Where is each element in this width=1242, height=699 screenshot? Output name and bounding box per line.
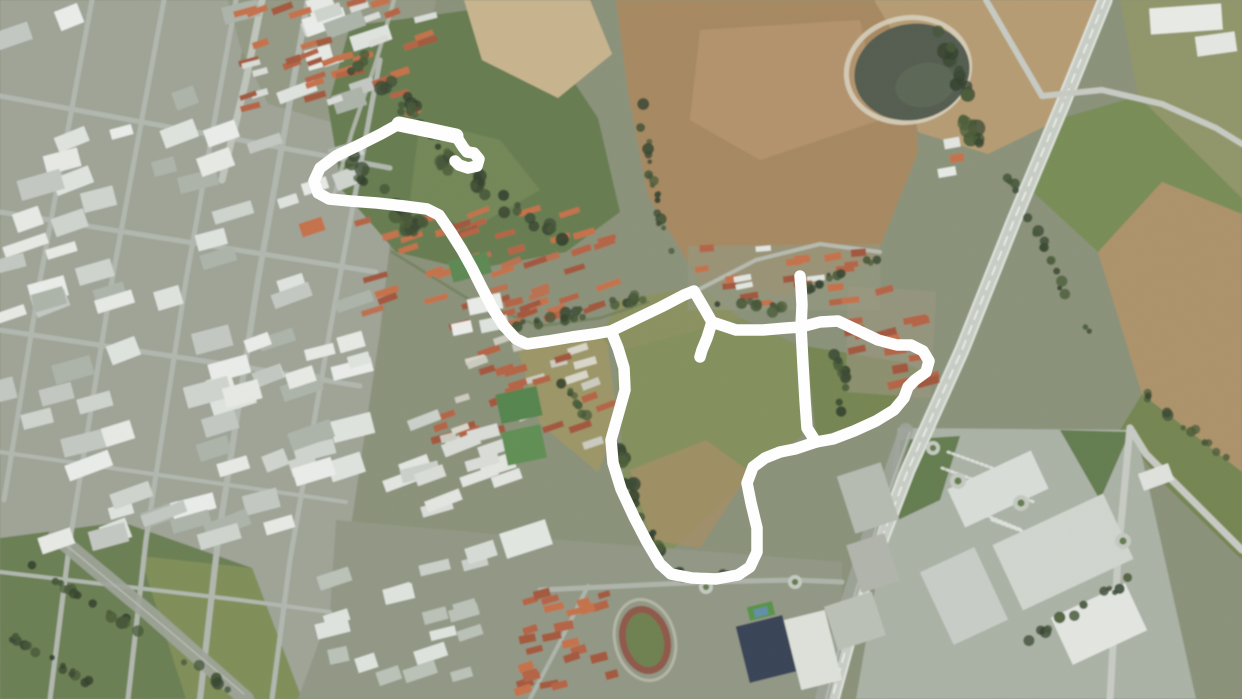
map-viewport[interactable]: [0, 0, 1242, 699]
satellite-map[interactable]: [0, 0, 1242, 699]
grain-overlay: [0, 0, 1242, 699]
